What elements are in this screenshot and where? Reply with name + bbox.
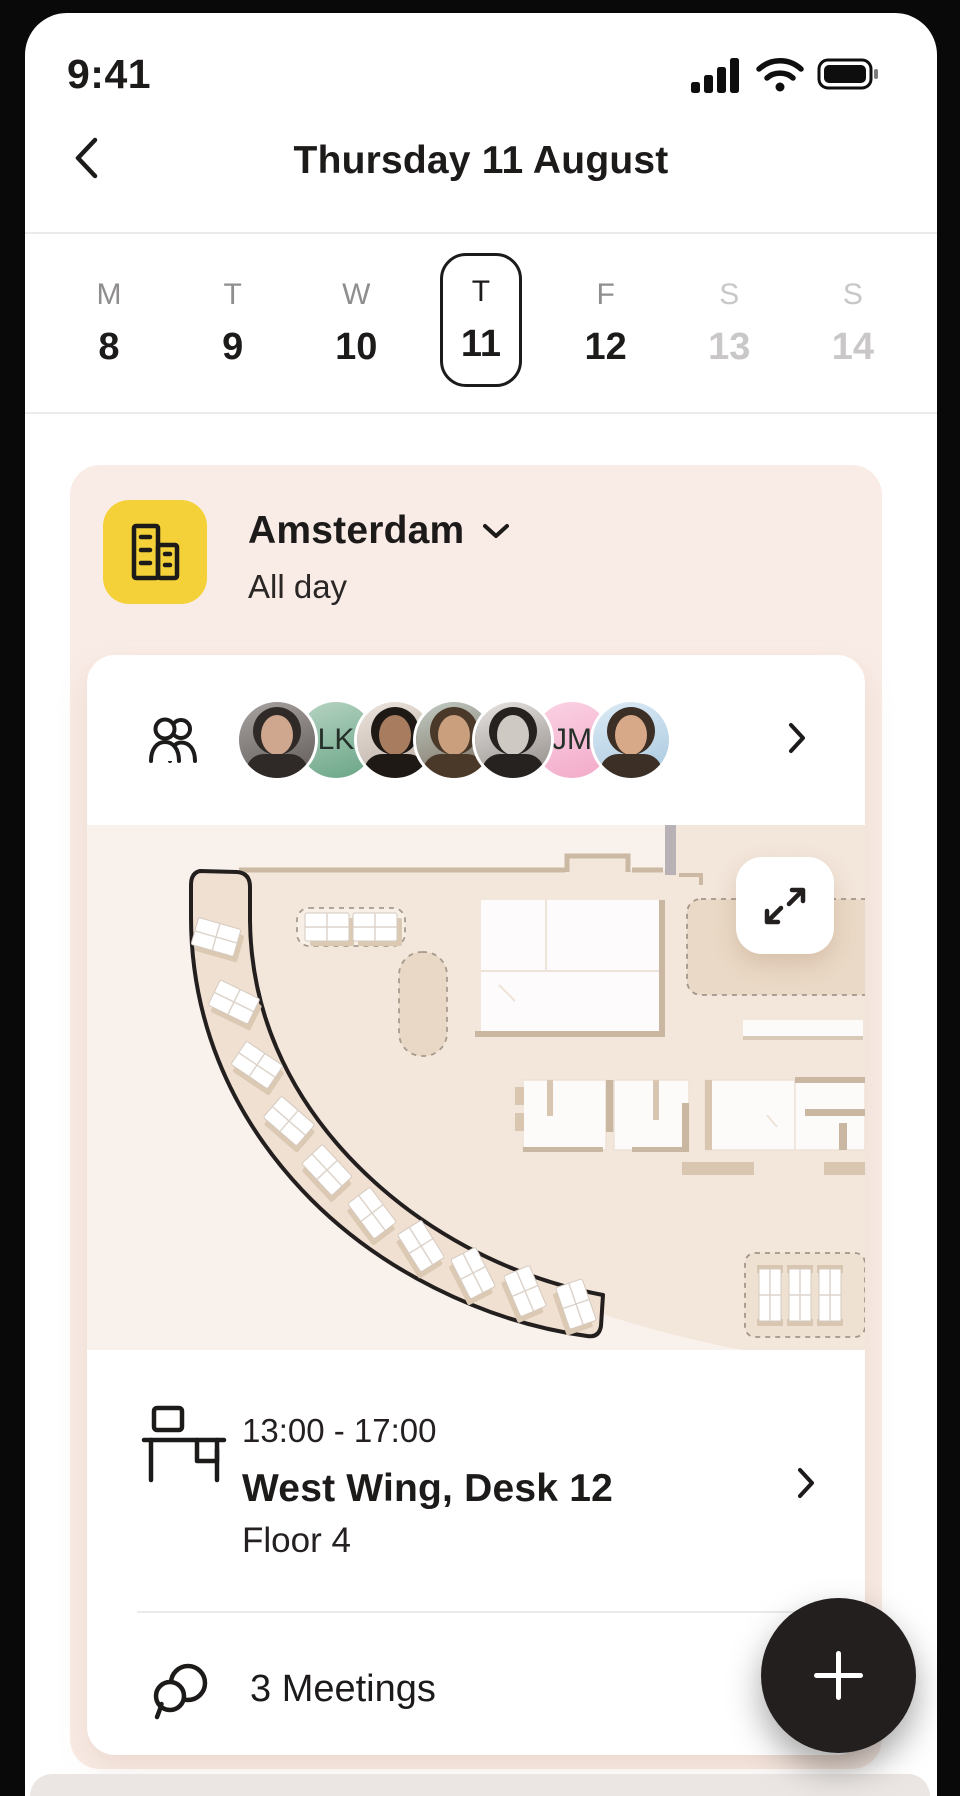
day-number: 9 [222, 326, 243, 369]
status-time: 9:41 [67, 51, 151, 98]
day-letter: S [719, 278, 739, 312]
day-tue-9[interactable]: T 9 [193, 235, 273, 411]
plus-icon [836, 1651, 841, 1700]
day-number: 8 [98, 326, 119, 369]
office-building-icon [103, 500, 207, 604]
signal-icon [691, 55, 743, 93]
map-expand-button[interactable] [736, 857, 834, 954]
day-mon-8[interactable]: M 8 [69, 235, 149, 411]
day-sun-14[interactable]: S 14 [813, 235, 893, 411]
expand-icon [759, 880, 811, 932]
meetings-count-label: 3 Meetings [250, 1668, 436, 1711]
booking-location: West Wing, Desk 12 [242, 1467, 613, 1511]
day-letter: T [223, 278, 241, 312]
day-number: 10 [335, 326, 377, 369]
chat-icon [145, 1655, 215, 1725]
day-number: 11 [461, 323, 501, 366]
avatar[interactable] [475, 702, 551, 778]
week-strip: M 8 T 9 W 10 T 11 F 12 S 13 S 14 [69, 235, 893, 411]
status-icons [691, 55, 879, 93]
day-sat-13[interactable]: S 13 [689, 235, 769, 411]
divider [25, 412, 937, 414]
day-letter: S [843, 278, 863, 312]
add-button[interactable] [761, 1598, 916, 1753]
desk-icon [140, 1400, 228, 1488]
day-letter: F [596, 278, 614, 312]
page-title: Thursday 11 August [25, 139, 937, 183]
divider [25, 232, 937, 234]
phone-screen: 9:41 Thursday 11 Augu [25, 13, 937, 1796]
floor-map[interactable] [87, 825, 865, 1350]
day-number: 12 [584, 326, 626, 369]
people-icon [145, 712, 203, 770]
event-card: Amsterdam All day [70, 465, 882, 1769]
day-letter: W [342, 278, 370, 312]
day-detail-card: LK JM [87, 655, 865, 1755]
day-wed-10[interactable]: W 10 [316, 235, 396, 411]
location-selector-label[interactable]: Amsterdam [248, 509, 464, 553]
chevron-right-icon [788, 722, 806, 754]
divider [137, 1611, 865, 1613]
avatar[interactable] [593, 702, 669, 778]
chevron-down-icon[interactable] [482, 523, 510, 541]
chevron-right-icon [797, 1467, 815, 1499]
event-duration: All day [248, 568, 347, 606]
day-letter: M [97, 278, 122, 312]
day-letter: T [472, 275, 490, 309]
battery-icon [817, 58, 879, 90]
day-thu-11-selected[interactable]: T 11 [440, 253, 522, 387]
next-sheet-strip [30, 1774, 930, 1796]
day-fri-12[interactable]: F 12 [566, 235, 646, 411]
booking-chevron[interactable] [797, 1467, 815, 1499]
wifi-icon [755, 55, 805, 93]
avatar[interactable] [239, 702, 315, 778]
booking-time-range: 13:00 - 17:00 [242, 1412, 437, 1450]
attendees-chevron[interactable] [788, 722, 806, 754]
day-number: 14 [832, 326, 874, 369]
booking-floor: Floor 4 [242, 1521, 351, 1561]
day-number: 13 [708, 326, 750, 369]
device-frame: { "status_bar": { "time": "9:41", "icons… [0, 0, 960, 1796]
